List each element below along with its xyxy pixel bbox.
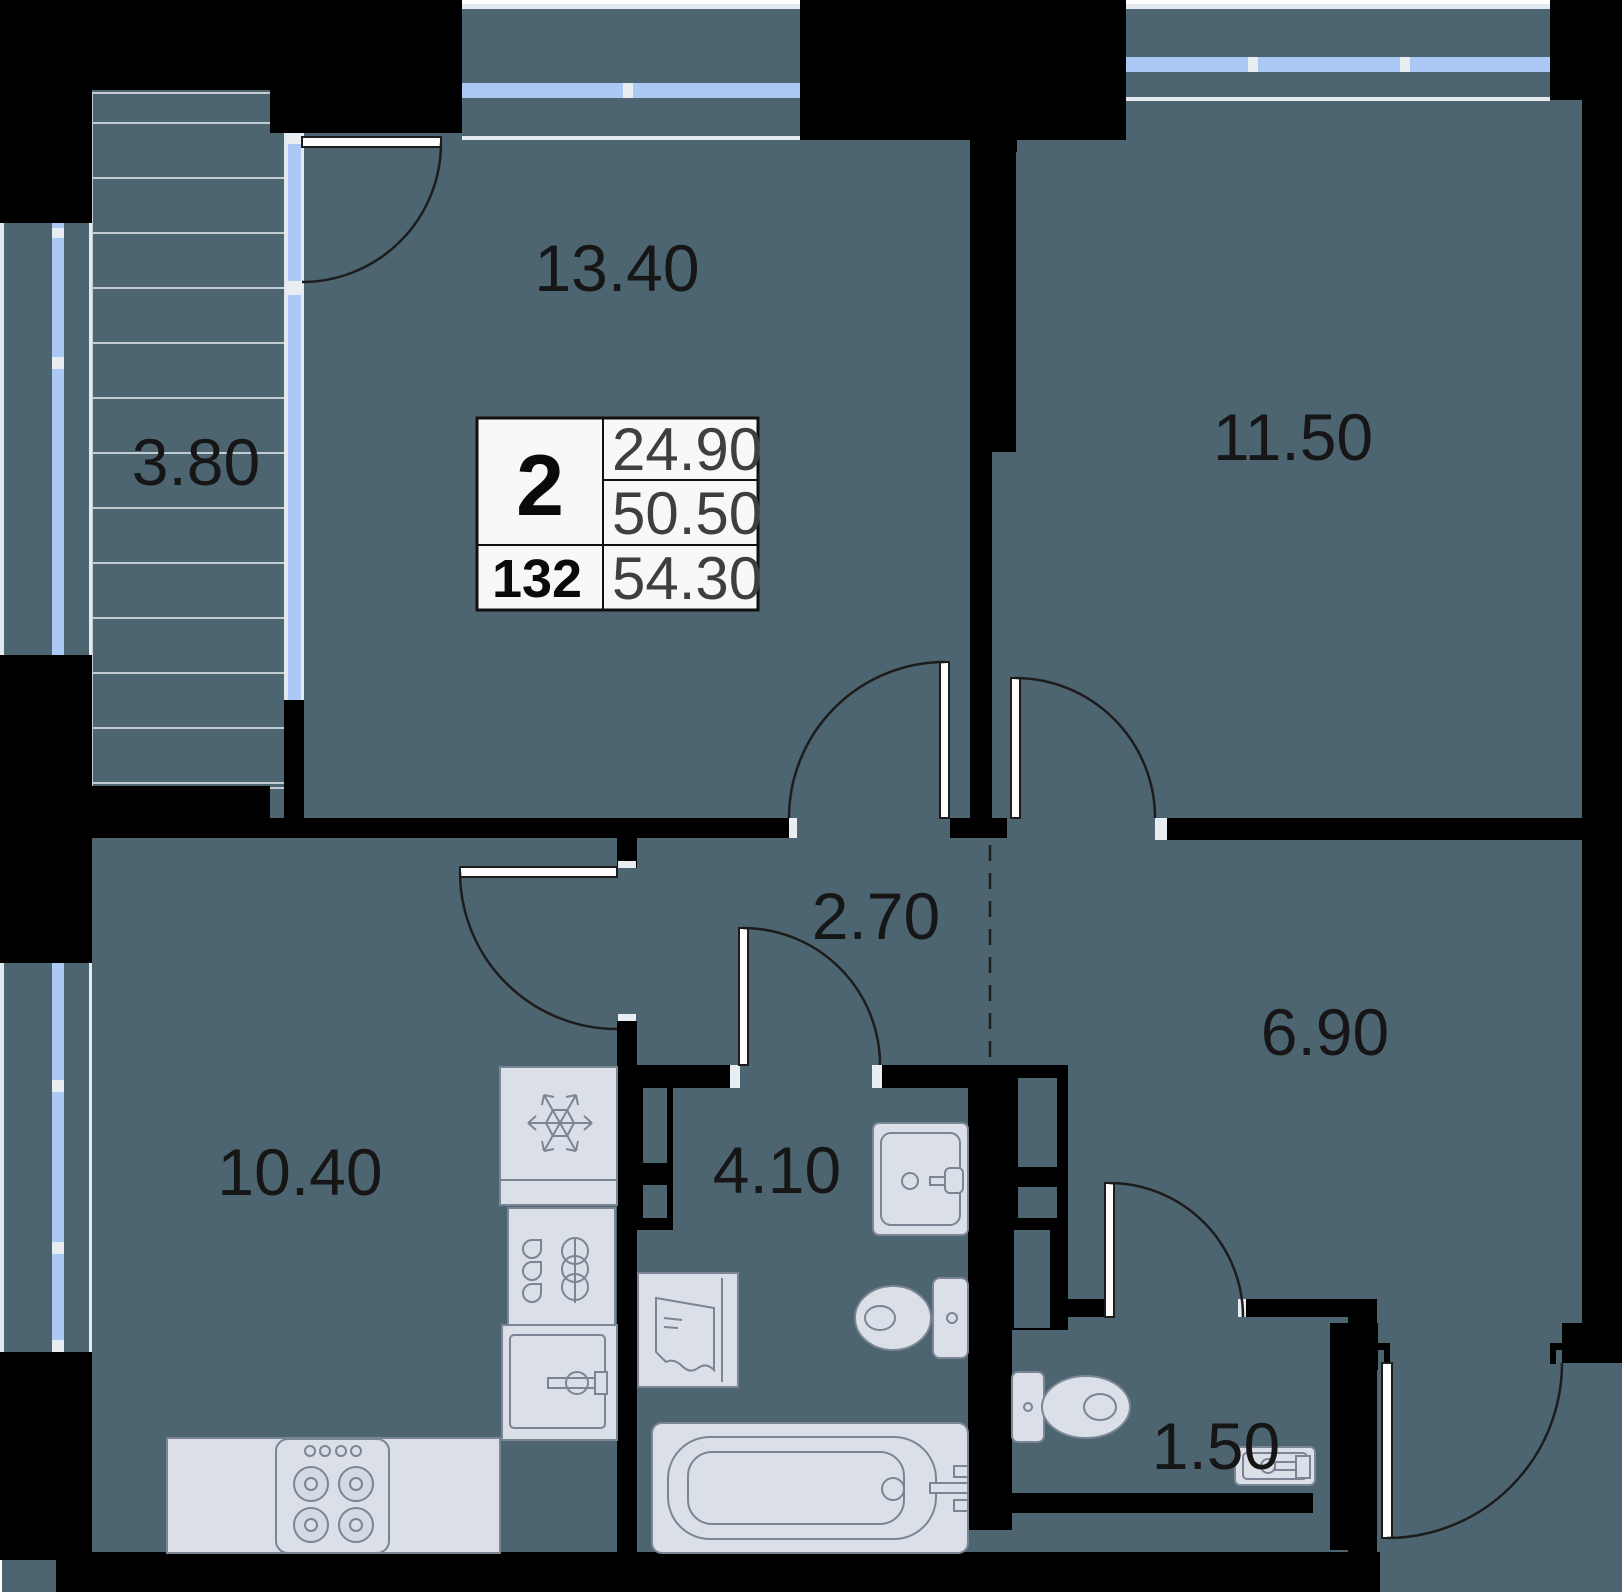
floor-plan: 13.40 11.50 3.80 2.70 6.90 10.40 4.10 1.… [0, 0, 1622, 1592]
floor-plan-canvas: 13.40 11.50 3.80 2.70 6.90 10.40 4.10 1.… [0, 0, 1622, 1592]
stove [276, 1439, 389, 1553]
bedroom-area-label: 11.50 [1213, 400, 1373, 474]
wc-area-label: 1.50 [1152, 1409, 1280, 1483]
kitchen-sink [502, 1325, 617, 1440]
refrigerator [500, 1067, 617, 1180]
area-without-balcony-value: 50.50 [612, 480, 762, 547]
unit-number-value: 132 [492, 549, 582, 609]
wc-toilet [1012, 1372, 1130, 1442]
living-area-value: 24.90 [612, 416, 762, 483]
hallway-area-label: 6.90 [1261, 995, 1389, 1069]
bathroom-sink [873, 1123, 968, 1235]
total-area-value: 54.30 [612, 545, 762, 612]
corridor-area-label: 2.70 [812, 879, 940, 953]
apartment-info-table: 2 132 24.90 50.50 54.30 [477, 416, 762, 612]
kitchen-area-label: 10.40 [217, 1135, 382, 1209]
balcony-area-label: 3.80 [132, 425, 260, 499]
washing-machine [638, 1273, 738, 1387]
balcony-inner-window [284, 130, 304, 707]
rooms-count-value: 2 [516, 438, 564, 534]
living-room-area-label: 13.40 [534, 231, 699, 305]
bathroom-area-label: 4.10 [713, 1133, 841, 1207]
kitchen-cabinet [500, 1180, 617, 1325]
bathtub [652, 1423, 968, 1553]
